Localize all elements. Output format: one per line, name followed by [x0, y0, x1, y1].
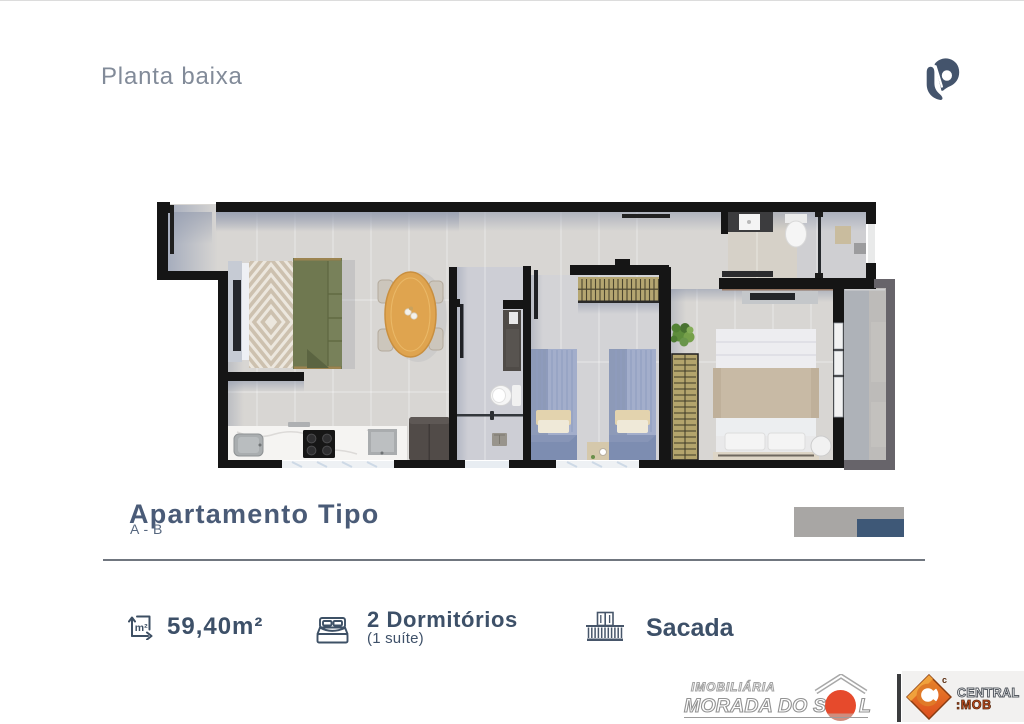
svg-text:c: c — [942, 675, 947, 685]
svg-text:m²: m² — [135, 622, 148, 634]
